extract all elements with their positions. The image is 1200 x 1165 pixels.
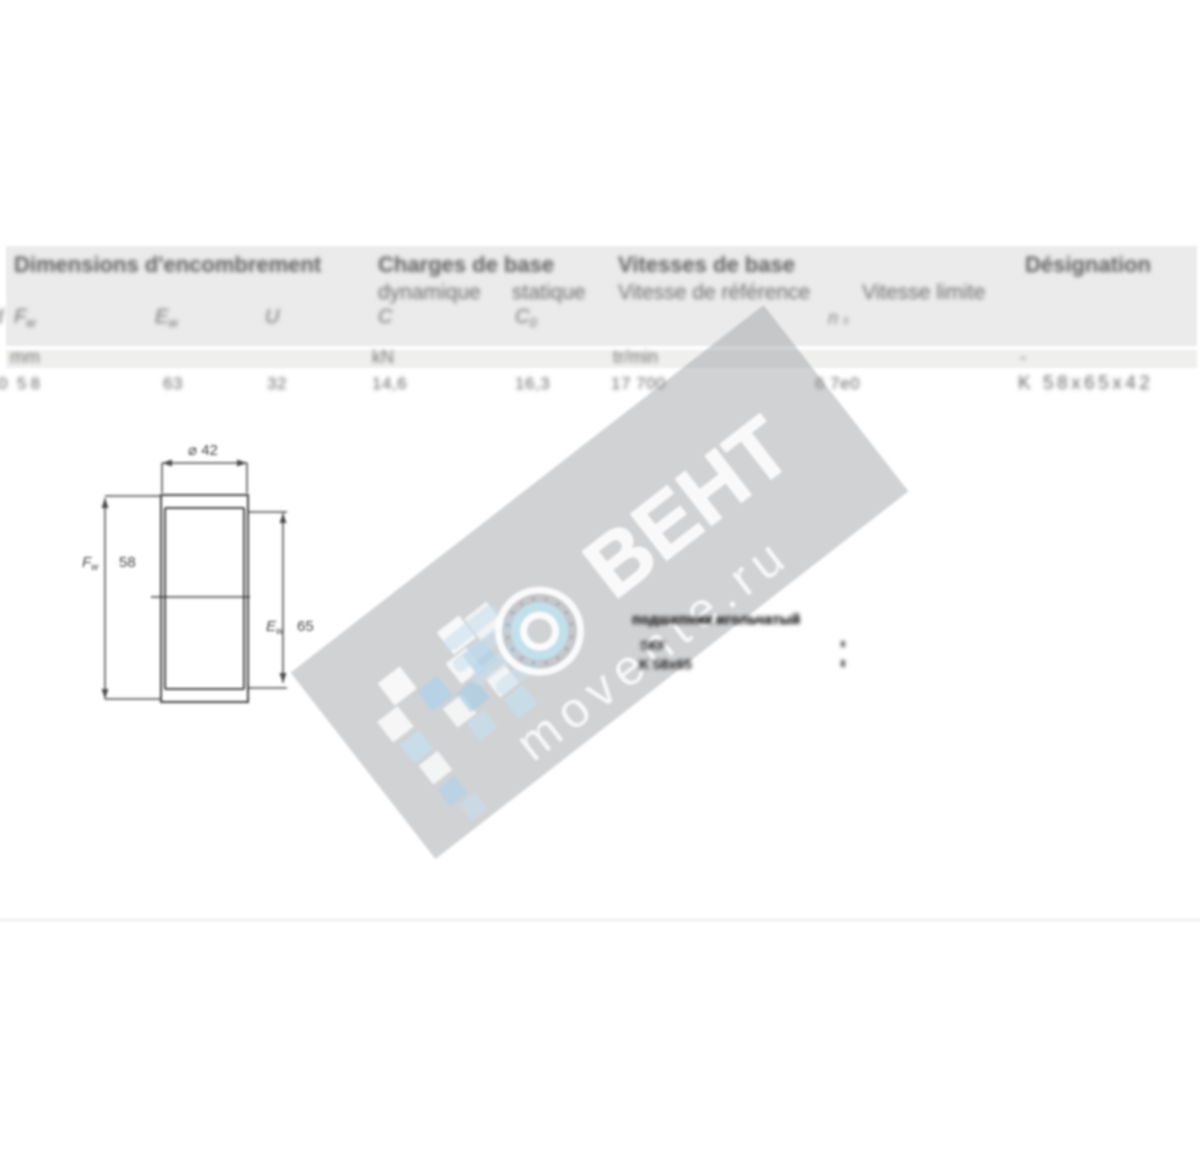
svg-text:⌀ 42: ⌀ 42 bbox=[188, 442, 218, 459]
svg-text:Ew: Ew bbox=[266, 618, 284, 637]
svg-text:Fw: Fw bbox=[82, 554, 99, 573]
svg-text:58: 58 bbox=[119, 554, 136, 571]
svg-text:65: 65 bbox=[297, 618, 314, 635]
